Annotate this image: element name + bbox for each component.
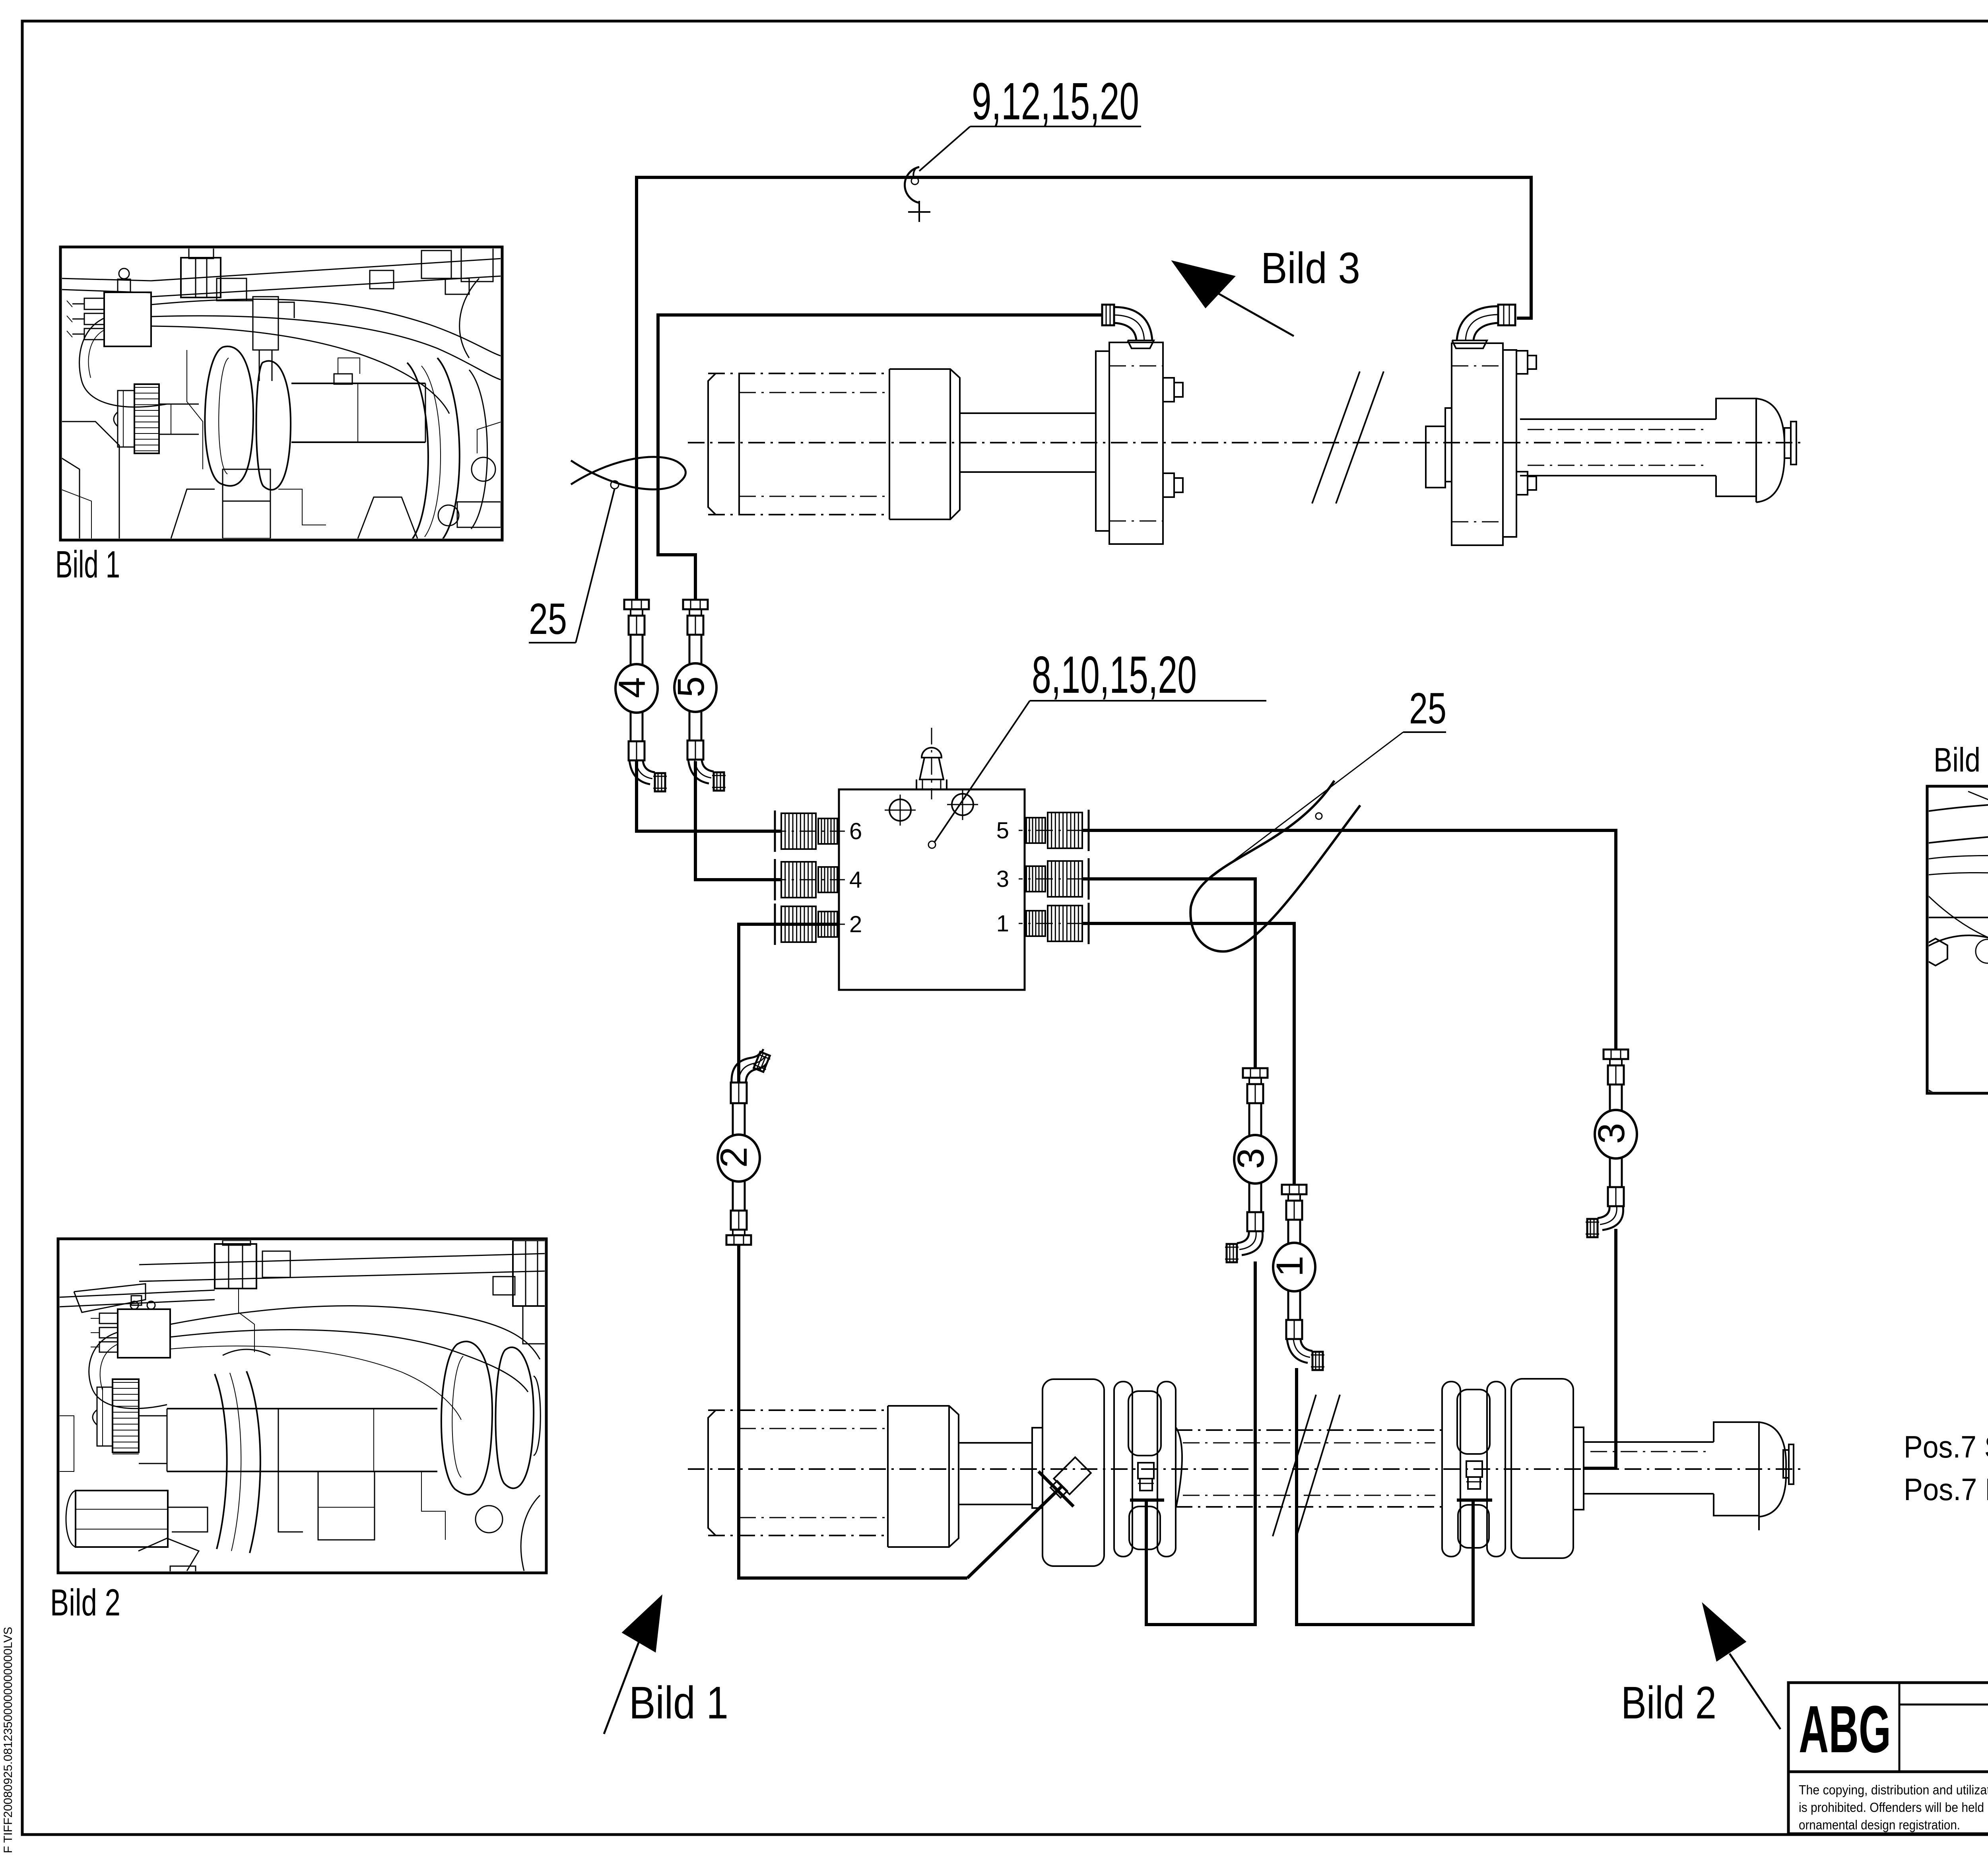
svg-text:5: 5 <box>670 676 712 698</box>
svg-text:Bild 1: Bild 1 <box>55 543 120 586</box>
svg-text:ABG: ABG <box>1799 1692 1891 1767</box>
svg-text:2: 2 <box>849 912 862 937</box>
svg-text:Bild 2: Bild 2 <box>1621 1677 1716 1728</box>
svg-text:ornamental design registration: ornamental design registration. <box>1799 1817 1960 1832</box>
svg-text:4: 4 <box>849 867 862 893</box>
svg-text:2: 2 <box>713 1147 755 1168</box>
svg-text:is prohibited. Offenders will: is prohibited. Offenders will be held li… <box>1799 1800 1988 1815</box>
svg-text:Pos.7 Lubrication-hosekit 750: Pos.7 Lubrication-hosekit 750 <box>1904 1472 1988 1507</box>
svg-text:Bild 1: Bild 1 <box>629 1677 728 1728</box>
svg-text:3: 3 <box>1590 1123 1633 1144</box>
svg-text:25: 25 <box>529 595 567 643</box>
svg-text:Bild 3: Bild 3 <box>1934 741 1988 779</box>
svg-text:8,10,15,20: 8,10,15,20 <box>1032 645 1197 704</box>
svg-text:Bild 2: Bild 2 <box>50 1582 120 1624</box>
svg-text:25: 25 <box>1409 684 1446 733</box>
svg-text:3: 3 <box>1230 1148 1272 1169</box>
svg-text:F TIFF20080925.081235000000000: F TIFF20080925.08123500000000000LVS <box>2 1627 15 1853</box>
svg-text:6: 6 <box>849 818 862 844</box>
svg-text:1: 1 <box>1269 1256 1311 1277</box>
svg-text:The copying, distribution and: The copying, distribution and utilizatio… <box>1799 1782 1988 1797</box>
svg-text:9,12,15,20: 9,12,15,20 <box>972 72 1139 130</box>
svg-text:Pos.7 Schmierschl.Kit 750: Pos.7 Schmierschl.Kit 750 <box>1904 1429 1988 1464</box>
svg-text:3: 3 <box>996 866 1009 892</box>
svg-text:4: 4 <box>611 677 653 698</box>
svg-text:1: 1 <box>996 911 1009 937</box>
svg-text:5: 5 <box>996 818 1009 844</box>
svg-text:Bild 3: Bild 3 <box>1261 244 1360 293</box>
